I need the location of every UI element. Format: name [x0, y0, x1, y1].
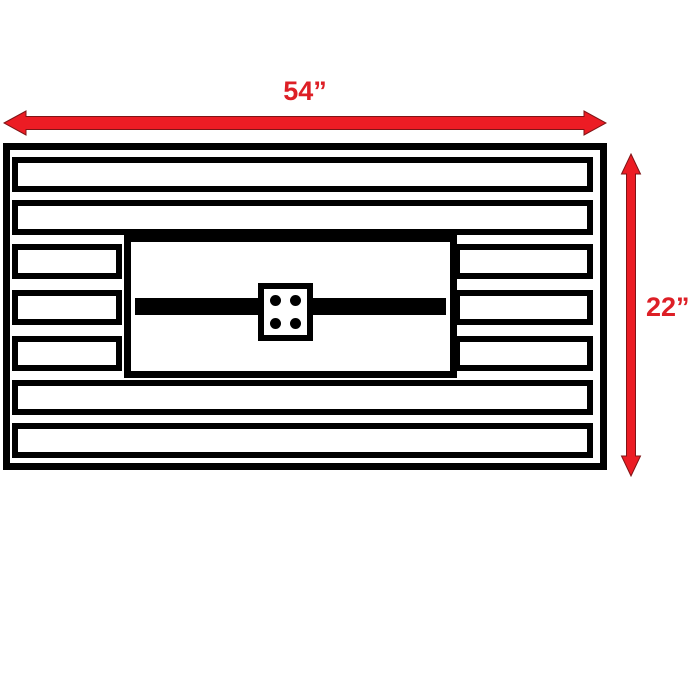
table-slat-right-segment — [454, 290, 593, 325]
table-slat — [12, 423, 593, 458]
table-slat — [12, 200, 593, 235]
table-slat — [12, 380, 593, 415]
width-dimension-label: 54” — [3, 78, 607, 105]
burner-dot — [270, 295, 281, 306]
width-arrow-shape — [4, 111, 606, 135]
table-slat-right-segment — [454, 244, 593, 279]
burner-dot — [290, 295, 301, 306]
burner-box — [124, 235, 457, 378]
burner-dot — [290, 318, 301, 329]
table-slat-right-segment — [454, 336, 593, 371]
width-dimension-arrow — [3, 106, 607, 140]
table-slat — [12, 157, 593, 192]
table-slat-left-segment — [12, 244, 122, 279]
height-dimension-arrow — [619, 153, 643, 477]
table-top-outline — [3, 143, 607, 470]
height-dimension-label: 22” — [646, 294, 690, 321]
burner-plate — [258, 283, 313, 341]
table-slat-left-segment — [12, 336, 122, 371]
burner-dot — [270, 318, 281, 329]
table-slat-left-segment — [12, 290, 122, 325]
height-arrow-shape — [622, 154, 641, 476]
dimension-diagram: 54” 22” — [0, 0, 700, 700]
